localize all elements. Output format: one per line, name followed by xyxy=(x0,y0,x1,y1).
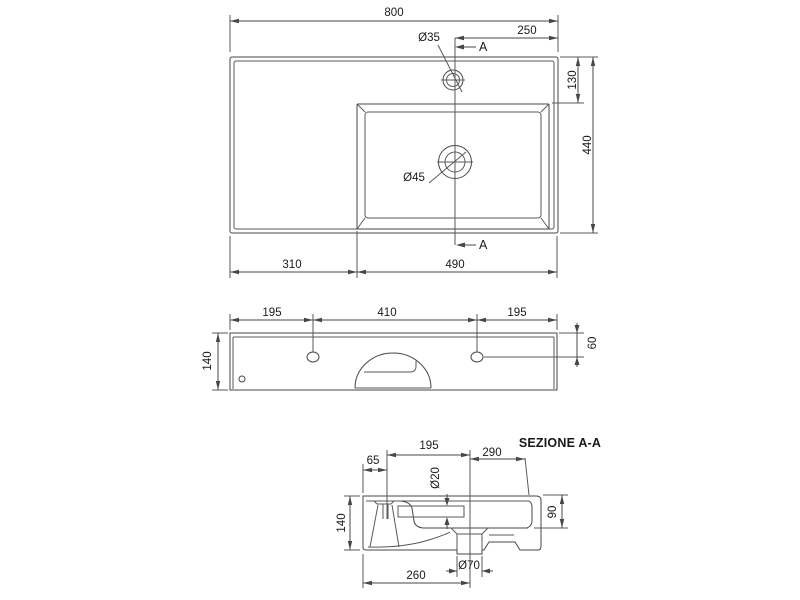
dim-hole-drop: 60 xyxy=(587,337,599,350)
bowl-corner-bevel xyxy=(541,104,549,112)
arrowhead xyxy=(575,357,580,365)
shell-underside xyxy=(368,532,450,547)
basin-body-outline xyxy=(230,57,558,233)
mounting-hole-left xyxy=(307,352,319,362)
tap-hole-leader xyxy=(438,45,462,92)
arrowhead xyxy=(575,325,580,333)
label-tap-diameter: Ø35 xyxy=(418,32,440,44)
dim-left-hole-offset: 195 xyxy=(262,307,281,319)
drain-funnel xyxy=(451,528,457,534)
dim-basin-width: 490 xyxy=(445,259,464,271)
mounting-hole-right xyxy=(471,352,483,362)
top-view: 800 250 Ø35 A 130 440 Ø45 A 310 490 xyxy=(230,7,598,278)
section-marker-bottom: A xyxy=(479,238,488,252)
arrowhead xyxy=(445,517,450,525)
dim-shelf-width: 310 xyxy=(282,259,301,271)
bowl-corner-bevel xyxy=(541,218,549,229)
basin-body-rim xyxy=(234,61,554,229)
dim-section-height: 140 xyxy=(336,513,348,532)
dim-drain-to-front: 290 xyxy=(482,447,501,459)
washbasin-drawing: 800 250 Ø35 A 130 440 Ø45 A 310 490 xyxy=(0,0,800,600)
bowl-floor-edge xyxy=(365,112,541,218)
dim-bowl-depth: 90 xyxy=(547,506,559,519)
drain-leader xyxy=(429,152,466,183)
dim-hole-spacing: 410 xyxy=(377,307,396,319)
bowl-corner-bevel xyxy=(357,218,365,229)
bowl-corner-bevel xyxy=(357,104,365,112)
label-overflow-diameter: Ø20 xyxy=(430,467,442,489)
section-outline xyxy=(363,496,541,554)
section-view: SEZIONE A-A 65 195 xyxy=(336,436,601,588)
bowl-outer-edge xyxy=(357,104,549,229)
dim-overall-width: 800 xyxy=(384,7,403,19)
drain-arch xyxy=(355,353,431,388)
dim-tap-to-drain: 195 xyxy=(419,440,438,452)
bowl-left-wall xyxy=(401,501,423,528)
front-body-outline xyxy=(230,333,557,390)
drain-funnel xyxy=(482,528,488,534)
overflow-slot xyxy=(398,506,464,517)
arrowhead xyxy=(482,569,490,574)
front-view: 140 195 410 195 60 xyxy=(202,307,599,390)
dim-back-to-basin: 130 xyxy=(567,70,579,89)
fixing-hole xyxy=(239,376,245,382)
dim-wall-to-tap: 65 xyxy=(367,455,380,467)
dim-tap-to-right: 250 xyxy=(517,25,536,37)
section-marker-top: A xyxy=(479,40,488,54)
section-arrow-bottom xyxy=(456,243,465,248)
drain-arch-inner-step xyxy=(364,361,416,372)
dim-drain-offset: 260 xyxy=(406,570,425,582)
label-drain-diameter: Ø45 xyxy=(403,172,425,184)
label-outlet-diameter: Ø70 xyxy=(458,560,480,572)
dim-overall-depth: 440 xyxy=(582,135,594,154)
technical-drawing-sheet: 800 250 Ø35 A 130 440 Ø45 A 310 490 xyxy=(0,0,800,600)
bowl-right-wall xyxy=(527,501,532,528)
tap-boss xyxy=(370,505,378,547)
dim-right-hole-offset: 195 xyxy=(507,307,526,319)
arrowhead xyxy=(445,498,450,506)
section-title: SEZIONE A-A xyxy=(519,436,601,450)
arrowhead xyxy=(449,569,457,574)
extension-line xyxy=(525,458,529,495)
section-arrow-top xyxy=(455,45,464,50)
dim-front-height: 140 xyxy=(202,351,214,370)
